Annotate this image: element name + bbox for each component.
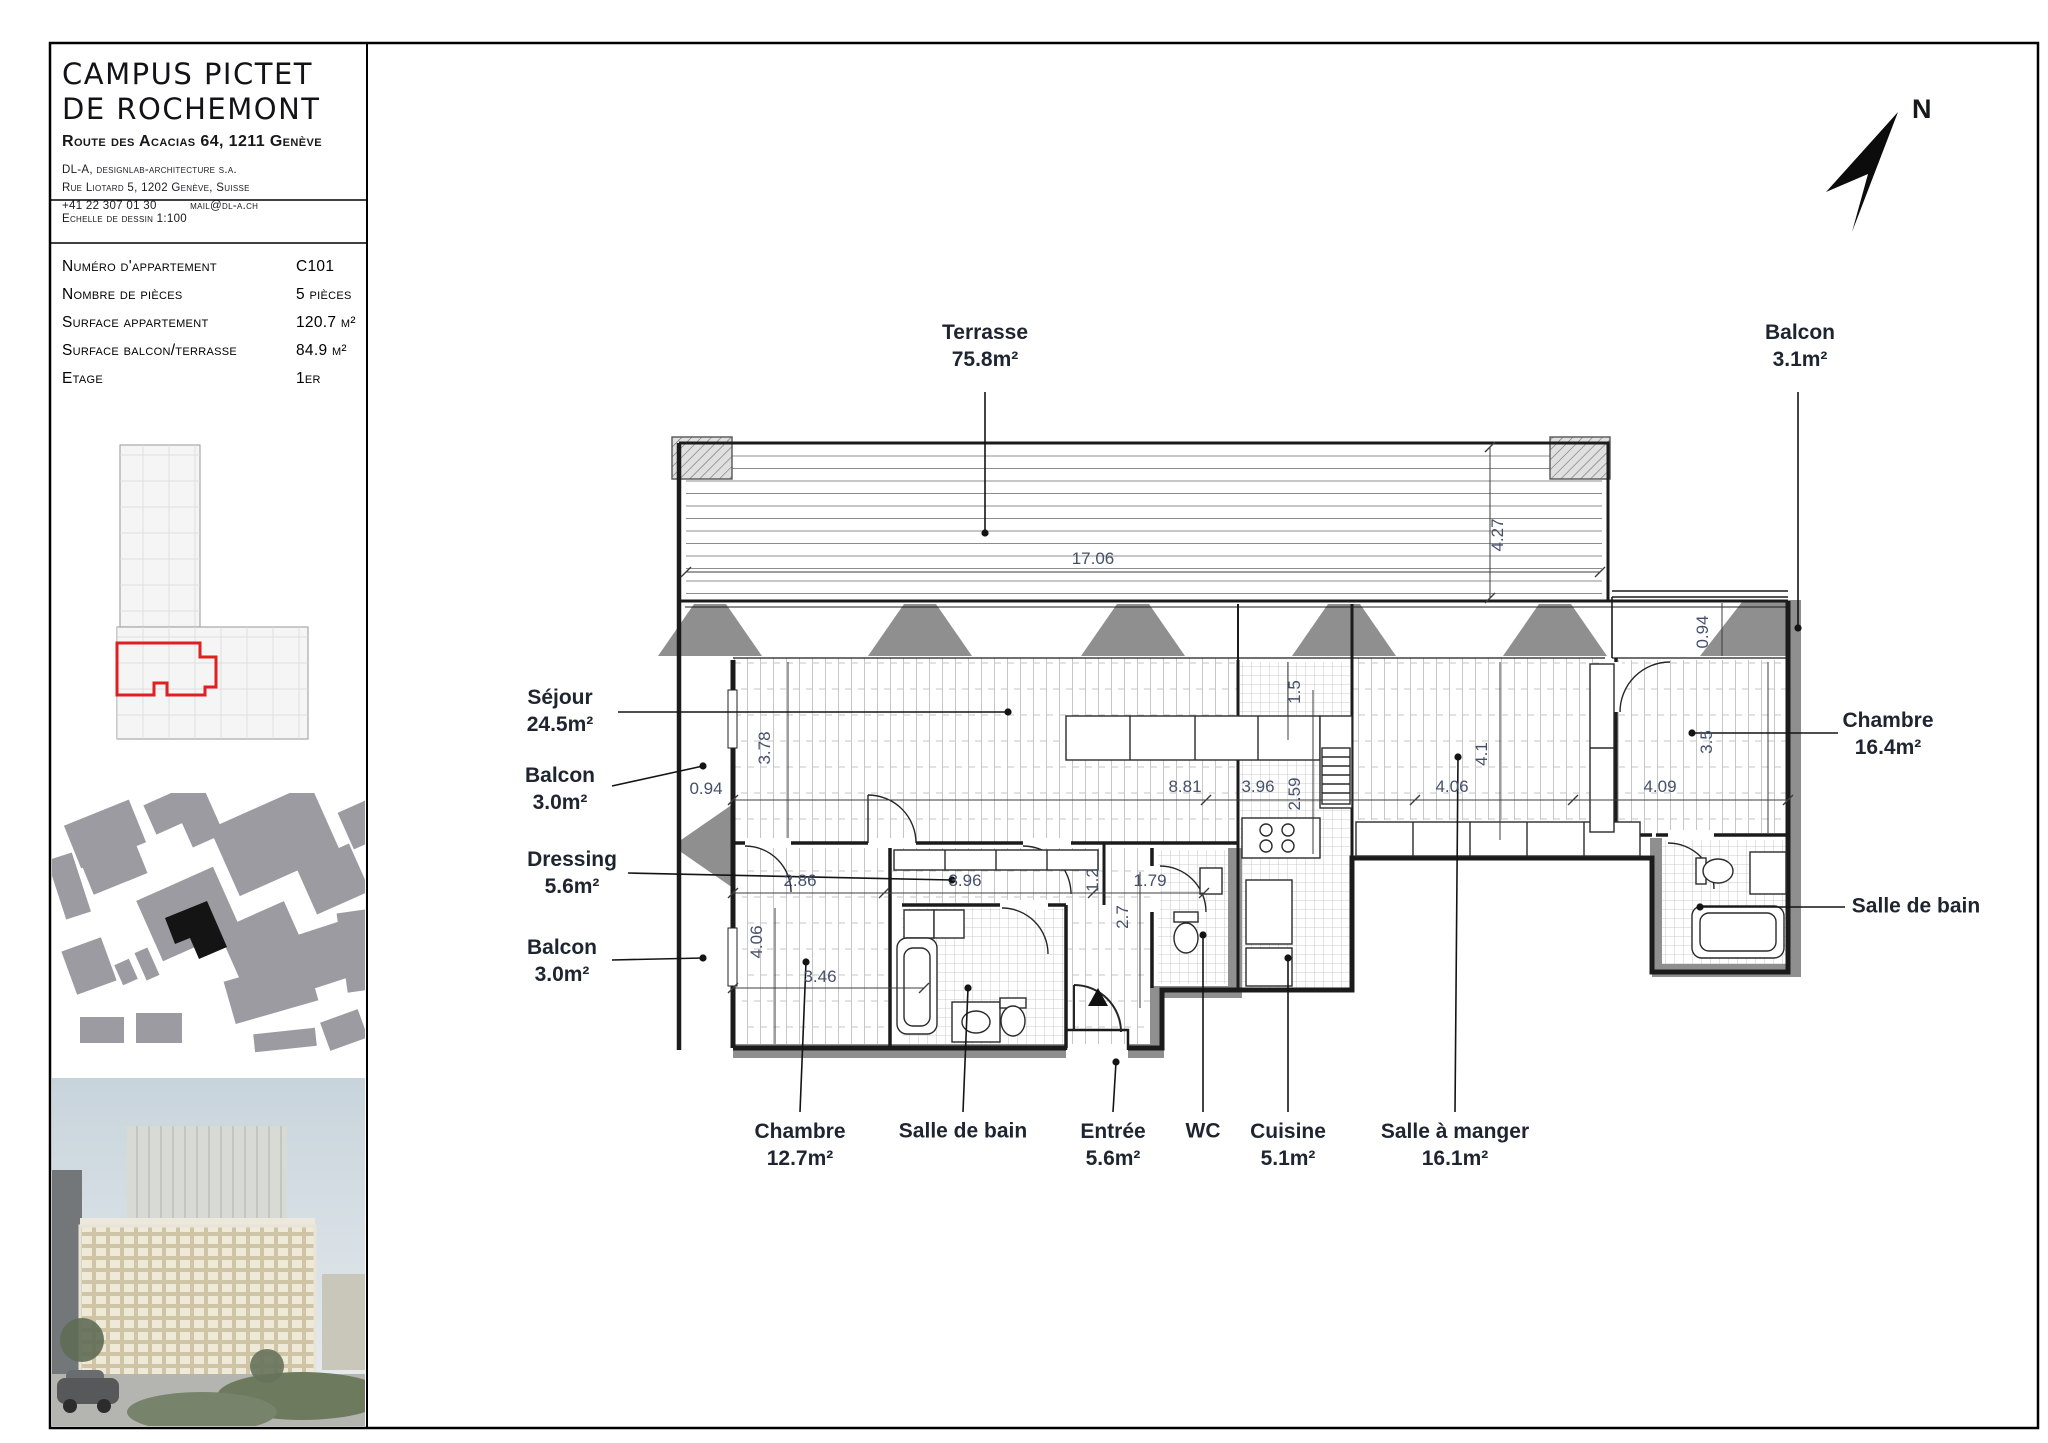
svg-text:3.5: 3.5: [1697, 730, 1716, 754]
info-row: Nombre de pièces 5 pièces: [62, 286, 362, 304]
room-label-entree: Entrée5.6m²: [1080, 1119, 1145, 1173]
room-label-dressing: Dressing5.6m²: [527, 847, 617, 901]
washer: [904, 910, 934, 938]
svg-text:4.06: 4.06: [747, 925, 766, 958]
svg-text:8.81: 8.81: [1168, 777, 1201, 796]
floor-plan: 17.06 4.27 0.94 3.78 0.94 8.81 1.5 3.96 …: [612, 94, 1932, 1112]
north-arrow: N: [1826, 94, 1932, 232]
room-label-chambre-sw: Chambre12.7m²: [754, 1119, 845, 1173]
svg-text:3.46: 3.46: [803, 967, 836, 986]
ne-corner-column: [1700, 602, 1788, 656]
room-label-chambre-e: Chambre16.4m²: [1842, 708, 1933, 762]
sheet-canvas: 17.06 4.27 0.94 3.78 0.94 8.81 1.5 3.96 …: [0, 0, 2048, 1443]
svg-text:2.86: 2.86: [783, 871, 816, 890]
cooktop-burner-icon: [1260, 824, 1272, 836]
info-row: Etage 1er: [62, 370, 362, 388]
svg-text:4.27: 4.27: [1488, 518, 1507, 551]
project-address: Route des Acacias 64, 1211 Genève: [62, 133, 322, 151]
room-label-balcon-ne: Balcon3.1m²: [1765, 320, 1835, 374]
svg-text:1.5: 1.5: [1285, 680, 1304, 704]
sink-east: [1750, 852, 1786, 894]
balcony-surface: 84.9 m²: [296, 342, 347, 360]
svg-text:4.09: 4.09: [1643, 777, 1676, 796]
svg-text:4.06: 4.06: [1435, 777, 1468, 796]
room-label-terrasse: Terrasse75.8m²: [942, 320, 1028, 374]
architect-address: Rue Liotard 5, 1202 Genève, Suisse: [62, 180, 258, 198]
info-row: Surface balcon/terrasse 84.9 m²: [62, 342, 362, 360]
project-title-line2: DE ROCHEMONT: [62, 92, 320, 127]
north-label: N: [1912, 94, 1932, 124]
room-label-sdb-e: Salle de bain: [1852, 894, 1980, 921]
svg-text:3.96: 3.96: [1241, 777, 1274, 796]
info-row: Numéro d'appartement C101: [62, 258, 362, 276]
north-arrow-icon: [1826, 112, 1898, 232]
floor-level: 1er: [296, 370, 321, 388]
drawing-scale: Echelle de dessin 1:100: [62, 213, 187, 225]
project-title-line1: CAMPUS PICTET: [62, 57, 320, 92]
wc-sink: [1200, 868, 1222, 894]
room-label-balcon-w2: Balcon3.0m²: [527, 935, 597, 989]
svg-text:2.59: 2.59: [1285, 777, 1304, 810]
svg-text:17.06: 17.06: [1072, 549, 1115, 568]
room-label-wc: WC: [1186, 1119, 1221, 1146]
toilet-east: [1703, 859, 1733, 883]
svg-text:0.94: 0.94: [689, 779, 722, 798]
room-label-cuisine: Cuisine5.1m²: [1250, 1119, 1326, 1173]
room-label-balcon-w1: Balcon3.0m²: [525, 763, 595, 817]
kitchen-sink-unit: [1246, 880, 1292, 944]
svg-text:1.2: 1.2: [1083, 868, 1102, 892]
project-title: CAMPUS PICTET DE ROCHEMONT: [62, 57, 320, 128]
kitchen-counter: [1066, 716, 1320, 760]
svg-text:3.78: 3.78: [755, 731, 774, 764]
floor-plan-sheet: { "colors": { "accent_red": "#e02020", "…: [0, 0, 2048, 1443]
key-plan-thumbnail: [117, 445, 308, 739]
building-photo: [52, 1078, 387, 1432]
architect-phone: +41 22 307 01 30: [62, 200, 157, 212]
terrace-decking: [686, 450, 1602, 596]
apartment-surface: 120.7 m²: [296, 314, 356, 332]
info-row: Surface appartement 120.7 m²: [62, 314, 362, 332]
toilet: [1001, 1006, 1025, 1036]
architect-info: DL-A, designlab-architecture s.a. Rue Li…: [62, 162, 258, 215]
room-count: 5 pièces: [296, 286, 352, 304]
architect-email: mail@dl-a.ch: [190, 200, 258, 212]
svg-text:3.96: 3.96: [948, 871, 981, 890]
svg-text:2.7: 2.7: [1113, 905, 1132, 929]
svg-text:0.94: 0.94: [1693, 615, 1712, 648]
fridge: [1246, 948, 1292, 986]
svg-text:4.1: 4.1: [1472, 742, 1491, 766]
architect-name: DL-A, designlab-architecture s.a.: [62, 162, 258, 180]
room-label-sdb-s: Salle de bain: [899, 1119, 1027, 1146]
site-map: [47, 783, 390, 1075]
room-label-salle-a-manger: Salle à manger16.1m²: [1381, 1119, 1529, 1173]
wc-toilet: [1174, 923, 1198, 953]
room-label-sejour: Séjour24.5m²: [527, 685, 594, 739]
apartment-number: C101: [296, 258, 334, 276]
svg-text:1.79: 1.79: [1133, 871, 1166, 890]
